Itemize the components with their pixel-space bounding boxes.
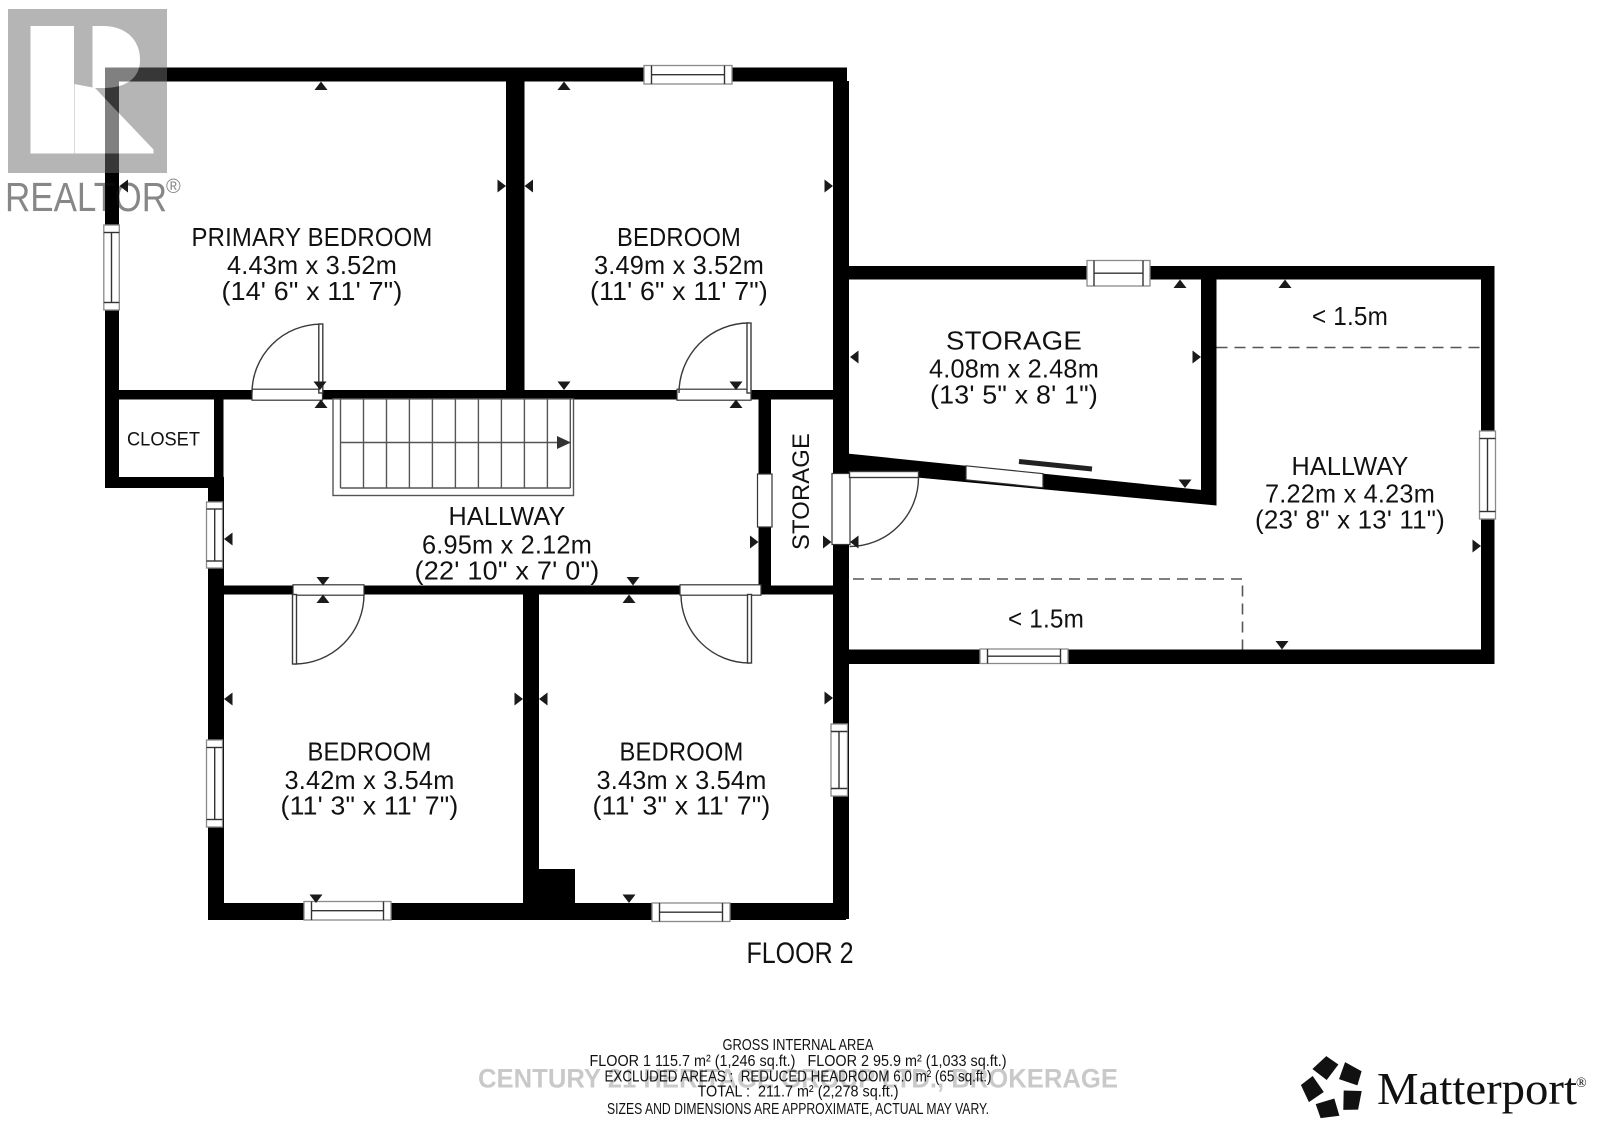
svg-text:HALLWAY: HALLWAY [449,501,566,531]
svg-text:GROSS INTERNAL AREA: GROSS INTERNAL AREA [723,1037,874,1054]
svg-text:(22' 10" x 7' 0"): (22' 10" x 7' 0") [415,555,600,585]
svg-text:(13' 5" x 8' 1"): (13' 5" x 8' 1") [930,380,1098,410]
svg-text:SIZES AND DIMENSIONS ARE APPRO: SIZES AND DIMENSIONS ARE APPROXIMATE, AC… [607,1101,989,1118]
svg-text:(11' 6" x 11' 7"): (11' 6" x 11' 7") [590,276,768,306]
svg-text:BEDROOM: BEDROOM [620,737,744,767]
svg-text:STORAGE: STORAGE [946,326,1082,356]
svg-text:FLOOR 2: FLOOR 2 [747,937,854,970]
svg-text:< 1.5m: < 1.5m [1008,604,1084,634]
svg-text:< 1.5m: < 1.5m [1312,301,1388,331]
svg-text:CLOSET: CLOSET [127,430,200,451]
svg-text:(23' 8" x 13' 11"): (23' 8" x 13' 11") [1255,505,1445,535]
svg-text:FLOOR 1 115.7 m² (1,246 sq.ft.: FLOOR 1 115.7 m² (1,246 sq.ft.) FLOOR 2 … [590,1053,1007,1070]
svg-text:®: ® [166,176,181,198]
svg-text:BEDROOM: BEDROOM [617,222,741,252]
svg-text:(11' 3" x 11' 7"): (11' 3" x 11' 7") [281,791,459,821]
svg-text:BEDROOM: BEDROOM [308,737,432,767]
svg-text:Matterport: Matterport [1377,1063,1577,1114]
svg-text:STORAGE: STORAGE [788,433,815,550]
svg-text:PRIMARY BEDROOM: PRIMARY BEDROOM [192,222,433,252]
svg-text:REALTOR: REALTOR [5,174,167,220]
svg-text:(14' 6" x 11' 7"): (14' 6" x 11' 7") [222,276,403,306]
svg-text:(11' 3" x 11' 7"): (11' 3" x 11' 7") [593,791,771,821]
svg-text:®: ® [1576,1076,1587,1091]
svg-text:HALLWAY: HALLWAY [1292,451,1409,481]
svg-text:TOTAL : 211.7 m² (2,278 sq.ft: TOTAL : 211.7 m² (2,278 sq.ft.) [698,1084,899,1101]
